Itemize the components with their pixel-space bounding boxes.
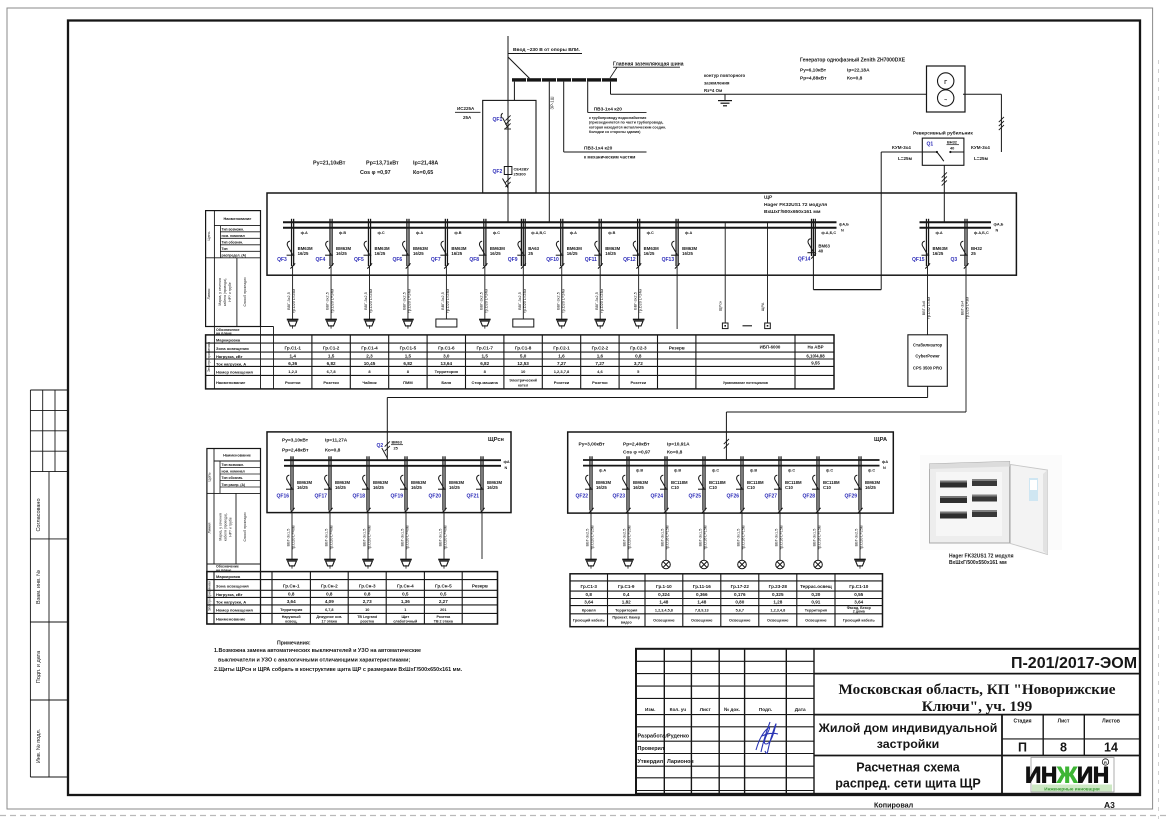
svg-text:Инв. № подл.: Инв. № подл.: [36, 728, 42, 763]
svg-text:ВВГ-3х1,5: ВВГ-3х1,5: [661, 529, 665, 547]
svg-text:R: R: [1104, 760, 1107, 765]
svg-text:Ключи", уч. 199: Ключи", уч. 199: [922, 698, 1033, 715]
svg-text:Ко=0,8: Ко=0,8: [325, 448, 341, 454]
svg-text:фА: фА: [882, 460, 888, 464]
svg-text:N: N: [841, 228, 844, 232]
svg-text:16/25: 16/25: [933, 251, 944, 256]
svg-text:Цепь: Цепь: [207, 473, 211, 482]
svg-text:Гр.17-22: Гр.17-22: [731, 584, 750, 589]
svg-text:QF10: QF10: [546, 257, 559, 263]
svg-text:Гр.С1-4: Гр.С1-4: [361, 346, 378, 351]
svg-text:16/25: 16/25: [605, 251, 616, 256]
svg-text:25: 25: [528, 251, 533, 256]
svg-text:тр.D32 L=3м: тр.D32 L=3м: [927, 297, 931, 319]
svg-text:фА: фА: [504, 460, 510, 464]
svg-text:Марка, у сечения: Марка, у сечения: [218, 278, 222, 305]
svg-text:кабеля (провода),: кабеля (провода),: [224, 513, 228, 541]
svg-text:1,4: 1,4: [290, 354, 297, 359]
svg-text:QF18: QF18: [353, 494, 366, 500]
svg-text:Наименование: Наименование: [223, 454, 251, 458]
svg-text:НР? и трубе: НР? и трубе: [228, 282, 232, 301]
svg-text:QF21: QF21: [467, 494, 480, 500]
svg-text:тр.D20 L=25м: тр.D20 L=25м: [860, 525, 864, 549]
svg-text:Электроприемники: Электроприемники: [207, 342, 211, 372]
svg-text:Способ прокладки: Способ прокладки: [243, 277, 247, 306]
svg-text:Зона освещения: Зона освещения: [216, 346, 249, 351]
svg-text:ВВГ-3х1,5: ВВГ-3х1,5: [287, 529, 291, 547]
svg-text:Взам. инв. №: Взам. инв. №: [36, 570, 42, 604]
svg-text:Розетки: Розетки: [554, 380, 570, 385]
svg-text:Территория: Территория: [805, 608, 827, 612]
svg-text:5,6,7: 5,6,7: [736, 608, 744, 612]
svg-text:ф.А: ф.А: [685, 231, 692, 235]
svg-text:тр.D16 L=15м: тр.D16 L=15м: [666, 525, 670, 549]
svg-text:Ру=21,10кВт: Ру=21,10кВт: [313, 161, 346, 167]
svg-text:ВхШхГ/500х650х161 мм: ВхШхГ/500х650х161 мм: [764, 209, 821, 215]
svg-text:16/25: 16/25: [644, 251, 655, 256]
svg-text:2,27: 2,27: [439, 599, 448, 604]
svg-text:ВВГ-3х2,5: ВВГ-3х2,5: [287, 292, 291, 310]
svg-text:ИНЖИН: ИНЖИН: [1025, 763, 1109, 788]
svg-text:ВВГ-3х2,5: ВВГ-3х2,5: [441, 292, 445, 310]
svg-text:тр.D20 L=24м: тр.D20 L=24м: [600, 289, 604, 313]
svg-text:Гр.11-16: Гр.11-16: [693, 584, 711, 589]
svg-text:25/300: 25/300: [514, 172, 527, 177]
svg-text:ЩР: ЩР: [764, 195, 773, 201]
svg-text:Зона освещения: Зона освещения: [216, 583, 249, 588]
svg-text:№ док.: № док.: [724, 707, 740, 712]
svg-text:1: 1: [404, 608, 406, 612]
svg-text:6,36: 6,36: [288, 361, 297, 366]
svg-text:0,176: 0,176: [734, 592, 746, 597]
svg-text:2 дома: 2 дома: [853, 610, 866, 614]
svg-text:16/25: 16/25: [411, 485, 422, 490]
svg-text:Тип: Тип: [222, 247, 228, 251]
svg-text:ф.А: ф.А: [301, 231, 308, 235]
svg-text:тр.D20 L=25м: тр.D20 L=25м: [591, 525, 595, 549]
svg-text:40: 40: [818, 248, 823, 253]
svg-text:Жилой дом индивидуальной: Жилой дом индивидуальной: [818, 721, 998, 735]
svg-text:Розетка: Розетка: [436, 615, 451, 619]
svg-text:к механическим частям: к механическим частям: [584, 154, 635, 159]
svg-text:16/25: 16/25: [413, 251, 424, 256]
svg-text:ф.С: ф.С: [712, 469, 719, 473]
svg-text:Ток нагрузки, А: Ток нагрузки, А: [216, 361, 246, 366]
svg-text:ВВГ-3х2,5: ВВГ-3х2,5: [623, 529, 627, 547]
svg-text:Гр.С1-8: Гр.С1-8: [515, 346, 532, 351]
svg-text:0,8: 0,8: [635, 354, 642, 359]
svg-text:1,2,3,4,8: 1,2,3,4,8: [770, 608, 785, 612]
svg-text:1.Возможна замена автоматическ: 1.Возможна замена автоматических выключа…: [214, 647, 421, 654]
svg-text:16/25: 16/25: [682, 251, 693, 256]
svg-text:ИБП-6000: ИБП-6000: [760, 345, 781, 350]
svg-text:ВВГ-3х2,5: ВВГ-3х2,5: [364, 292, 368, 310]
svg-text:Разработал: Разработал: [638, 733, 670, 740]
svg-text:Примечания:: Примечания:: [277, 641, 311, 647]
svg-text:QF1: QF1: [493, 117, 503, 123]
svg-text:тр.D20 L=40м: тр.D20 L=40м: [292, 525, 296, 549]
svg-text:Лист: Лист: [1058, 719, 1070, 725]
svg-text:0,366: 0,366: [696, 592, 708, 597]
svg-text:QF24: QF24: [651, 494, 664, 500]
svg-text:Инженерные инновации: Инженерные инновации: [1044, 787, 1100, 792]
svg-text:Колодки со стороны здания): Колодки со стороны здания): [589, 130, 641, 134]
svg-text:заземления: заземления: [704, 81, 730, 86]
svg-text:освещ.: освещ.: [285, 620, 297, 624]
svg-text:14: 14: [1104, 741, 1118, 755]
svg-text:9,55: 9,55: [811, 361, 820, 366]
svg-text:ВВГ-3х2,5: ВВГ-3х2,5: [326, 292, 330, 310]
svg-text:QF9: QF9: [508, 257, 518, 263]
svg-text:0,8: 0,8: [364, 592, 371, 597]
svg-text:ф.А: ф.А: [599, 469, 606, 473]
svg-text:Изм.: Изм.: [645, 707, 655, 712]
svg-text:16/25: 16/25: [490, 251, 501, 256]
svg-text:7,27: 7,27: [595, 361, 604, 366]
svg-text:Уравнивание потенциалов: Уравнивание потенциалов: [723, 381, 768, 385]
svg-text:16/25: 16/25: [633, 485, 644, 490]
svg-text:тр.D20 L=24м: тр.D20 L=24м: [523, 289, 527, 313]
svg-text:тр.D20 L=40м: тр.D20 L=40м: [368, 525, 372, 549]
svg-text:Проверил: Проверил: [638, 746, 665, 752]
svg-text:QF20: QF20: [429, 494, 442, 500]
svg-text:6,82: 6,82: [327, 361, 336, 366]
svg-text:Гр.С1-3: Гр.С1-3: [581, 584, 598, 589]
svg-text:16/25: 16/25: [336, 251, 347, 256]
svg-text:ф.В: ф.В: [636, 469, 643, 473]
svg-text:тр.D16 L=15м: тр.D16 L=15м: [742, 525, 746, 549]
svg-text:Тип обознач.: Тип обознач.: [222, 476, 244, 480]
svg-text:Греющий кабель: Греющий кабель: [843, 619, 875, 623]
svg-text:Расчетная схема: Расчетная схема: [856, 761, 960, 775]
svg-text:4,09: 4,09: [325, 599, 334, 604]
svg-text:Электроприемники: Электроприемники: [207, 581, 211, 611]
svg-text:N: N: [996, 228, 999, 232]
svg-text:Освещение: Освещение: [653, 619, 675, 623]
svg-text:16/25: 16/25: [567, 251, 578, 256]
svg-text:Электрический: Электрический: [509, 379, 537, 383]
svg-text:тр.D20 L=40м: тр.D20 L=40м: [444, 525, 448, 549]
svg-text:ф.А: ф.А: [416, 231, 423, 235]
svg-text:ф.В: ф.В: [674, 469, 681, 473]
svg-text:Марка, у сечения: Марка, у сечения: [219, 513, 223, 540]
svg-text:Ру=6,10кВт: Ру=6,10кВт: [800, 68, 827, 74]
svg-text:С10: С10: [671, 485, 679, 490]
svg-text:Резерв: Резерв: [669, 346, 685, 351]
svg-text:ВВГ-3х2,5: ВВГ-3х2,5: [403, 292, 407, 310]
svg-text:Гр.С1-7: Гр.С1-7: [476, 346, 493, 351]
svg-text:5,0: 5,0: [520, 354, 527, 359]
svg-text:3,72: 3,72: [634, 361, 643, 366]
svg-text:ЗР-1Ш: ЗР-1Ш: [550, 96, 555, 109]
svg-text:ф.С: ф.С: [826, 469, 833, 473]
svg-text:0,80: 0,80: [735, 599, 744, 604]
svg-text:25А: 25А: [463, 115, 472, 120]
svg-text:Чайник: Чайник: [362, 380, 376, 385]
svg-text:ВВГ-3х1,5: ВВГ-3х1,5: [401, 529, 405, 547]
svg-text:16/25: 16/25: [451, 251, 462, 256]
svg-text:QF2: QF2: [493, 169, 503, 175]
svg-text:Номер помещения: Номер помещения: [216, 370, 253, 375]
svg-text:видео: видео: [621, 620, 633, 624]
svg-text:201: 201: [440, 608, 446, 612]
svg-text:ном. номинал: ном. номинал: [222, 234, 245, 238]
svg-text:ЩРсн: ЩРсн: [488, 437, 504, 443]
svg-text:16/25: 16/25: [335, 485, 346, 490]
svg-text:QF8: QF8: [469, 257, 479, 263]
svg-text:1,6: 1,6: [558, 354, 565, 359]
svg-text:QF16: QF16: [277, 494, 290, 500]
svg-text:тр.D20 L=24м: тр.D20 L=24м: [561, 289, 565, 313]
svg-text:А3: А3: [1104, 800, 1115, 810]
svg-text:Террас.освещ: Террас.освещ: [800, 584, 832, 589]
svg-text:16/25: 16/25: [375, 251, 386, 256]
svg-text:13,64: 13,64: [441, 361, 453, 366]
svg-text:Cos φ =0,97: Cos φ =0,97: [360, 170, 391, 176]
svg-text:0,325: 0,325: [772, 592, 784, 597]
svg-text:QF25: QF25: [689, 494, 702, 500]
svg-text:тр.D20 L=24м: тр.D20 L=24м: [638, 289, 642, 313]
svg-text:0,324: 0,324: [658, 592, 670, 597]
svg-text:L=25м: L=25м: [898, 156, 913, 161]
svg-text:С10: С10: [709, 485, 717, 490]
svg-text:Территория: Территория: [280, 608, 302, 612]
svg-text:на плане: на плане: [216, 332, 232, 336]
svg-text:Баня: Баня: [441, 380, 452, 385]
svg-text:Гр.С1-5: Гр.С1-5: [400, 346, 417, 351]
svg-text:Iр=21,48А: Iр=21,48А: [413, 161, 438, 167]
svg-text:Ввод ~230 В от опоры ВЛИ.: Ввод ~230 В от опоры ВЛИ.: [513, 47, 581, 53]
svg-text:ф.А,Б,С: ф.А,Б,С: [974, 231, 989, 235]
svg-text:8: 8: [1060, 741, 1067, 755]
svg-text:ВВГ-3х4: ВВГ-3х4: [961, 301, 965, 316]
svg-text:тр.D20 L=24м: тр.D20 L=24м: [292, 289, 296, 313]
svg-text:6,7,8: 6,7,8: [325, 608, 333, 612]
svg-text:тр.D20 L=40м: тр.D20 L=40м: [406, 525, 410, 549]
svg-text:0,4: 0,4: [623, 592, 630, 597]
svg-text:П-201/2017-ЭОМ: П-201/2017-ЭОМ: [1011, 655, 1137, 672]
svg-text:ВВГ-3х2,5: ВВГ-3х2,5: [855, 529, 859, 547]
svg-text:Греющий кабель: Греющий кабель: [573, 619, 605, 623]
svg-text:Реверсивный рубильник: Реверсивный рубильник: [913, 130, 973, 137]
svg-text:ВхШхГ/500х550х161 мм: ВхШхГ/500х550х161 мм: [949, 560, 1007, 566]
svg-text:2,3: 2,3: [366, 354, 373, 359]
svg-text:Наружный: Наружный: [282, 615, 301, 619]
svg-text:16/25: 16/25: [297, 485, 308, 490]
svg-text:ф.А,Б,С: ф.А,Б,С: [821, 231, 836, 235]
svg-text:Гр.С2-3: Гр.С2-3: [630, 346, 647, 351]
svg-text:0,20: 0,20: [811, 592, 820, 597]
svg-text:Наименование: Наименование: [216, 380, 246, 385]
svg-text:6,7,8: 6,7,8: [327, 369, 337, 374]
svg-text:40: 40: [950, 145, 954, 150]
svg-text:Розетки: Розетки: [592, 380, 608, 385]
svg-text:Гр.Сн-5: Гр.Сн-5: [435, 583, 452, 588]
svg-text:Гр.С1-10: Гр.С1-10: [849, 584, 868, 589]
svg-text:Тип обознач.: Тип обознач.: [222, 241, 244, 245]
svg-text:6,10/4,88: 6,10/4,88: [806, 353, 825, 358]
svg-text:Маркировка: Маркировка: [216, 574, 241, 579]
svg-text:Cos φ =0,97: Cos φ =0,97: [623, 450, 651, 456]
svg-text:ТВ Legrand: ТВ Legrand: [357, 615, 377, 619]
svg-text:Номер помещения: Номер помещения: [216, 607, 253, 612]
svg-text:Гр.23-28: Гр.23-28: [769, 584, 788, 589]
svg-text:12,53: 12,53: [517, 361, 529, 366]
svg-text:фА,Б: фА,Б: [839, 222, 849, 226]
svg-text:Освещение: Освещение: [805, 619, 827, 623]
svg-text:Нагрузка, кВт: Нагрузка, кВт: [216, 354, 243, 359]
svg-text:Кровля: Кровля: [582, 608, 596, 612]
svg-text:0,8: 0,8: [586, 592, 593, 597]
svg-text:QF22: QF22: [576, 494, 589, 500]
svg-text:тр.D20 L=24м: тр.D20 L=24м: [331, 289, 335, 313]
svg-text:ЩРА: ЩРА: [874, 437, 887, 443]
svg-text:Линия: Линия: [207, 523, 211, 534]
svg-text:которая находится металлически: которая находится металлическим соедин.: [589, 125, 666, 129]
svg-text:10: 10: [521, 369, 526, 374]
svg-text:Розетки: Розетки: [323, 380, 339, 385]
svg-text:ВВГ-3х2,5: ВВГ-3х2,5: [586, 529, 590, 547]
svg-text:Освещение: Освещение: [767, 619, 789, 623]
svg-text:QF23: QF23: [613, 494, 626, 500]
svg-text:25: 25: [971, 251, 976, 256]
svg-text:ВВГ-3х2,5: ВВГ-3х2,5: [633, 292, 637, 310]
svg-text:КУМ-3х4: КУМ-3х4: [892, 145, 911, 150]
svg-text:КУМ-3х4: КУМ-3х4: [971, 145, 990, 150]
svg-text:Розетки: Розетки: [285, 380, 301, 385]
svg-text:0,5: 0,5: [440, 592, 447, 597]
svg-text:тр.D25 L=3м: тр.D25 L=3м: [966, 297, 970, 319]
svg-text:Нагрузка, кВт: Нагрузка, кВт: [216, 592, 243, 597]
svg-text:Hager FK32US1 72 модуля: Hager FK32US1 72 модуля: [764, 202, 827, 208]
svg-text:2,73: 2,73: [363, 599, 372, 604]
svg-text:тр.D20 L=24м: тр.D20 L=24м: [446, 289, 450, 313]
svg-text:Территория: Территория: [435, 369, 459, 374]
svg-text:QF6: QF6: [392, 257, 402, 263]
svg-text:QF4: QF4: [316, 257, 326, 263]
svg-text:Гр.С1-9: Гр.С1-9: [618, 584, 635, 589]
svg-text:1,82: 1,82: [622, 599, 631, 604]
svg-text:1,28: 1,28: [773, 599, 782, 604]
svg-text:ф.А: ф.А: [936, 231, 943, 235]
svg-text:застройки: застройки: [877, 737, 939, 751]
svg-text:1,2,3,4,5,8: 1,2,3,4,5,8: [655, 608, 673, 612]
svg-text:Рр=4,88кВт: Рр=4,88кВт: [800, 76, 827, 82]
svg-text:тр.D16 L=15м: тр.D16 L=15м: [704, 525, 708, 549]
svg-text:QF3: QF3: [277, 257, 287, 263]
svg-text:Гр.Сн-1: Гр.Сн-1: [283, 583, 300, 588]
svg-text:Тип возможн.: Тип возможн.: [222, 463, 245, 467]
svg-text:ВВГ-3х1,5: ВВГ-3х1,5: [813, 529, 817, 547]
svg-text:ВВГ-3х1,5: ВВГ-3х1,5: [737, 529, 741, 547]
svg-text:3,64: 3,64: [854, 599, 863, 604]
svg-text:ф.В: ф.В: [454, 231, 461, 235]
svg-text:16/25: 16/25: [865, 485, 876, 490]
svg-text:выключатели и УЗО с аналогичны: выключатели и УЗО с аналогичными отличаю…: [218, 658, 410, 664]
svg-text:ПВ3-1х4 к20: ПВ3-1х4 к20: [594, 107, 623, 113]
svg-text:Линия: Линия: [207, 289, 211, 300]
svg-text:(присоединяется по части трубо: (присоединяется по части трубопровода,: [589, 121, 663, 125]
svg-text:0,55: 0,55: [854, 592, 863, 597]
svg-text:ВВГ-3х1,5: ВВГ-3х1,5: [775, 529, 779, 547]
svg-text:QF28: QF28: [803, 494, 816, 500]
svg-text:Руденко: Руденко: [667, 734, 690, 740]
svg-text:4,6: 4,6: [597, 369, 603, 374]
svg-text:0,8: 0,8: [326, 592, 333, 597]
svg-text:Московская область, КП "Новори: Московская область, КП "Новорижские: [839, 681, 1116, 698]
svg-text:ф.В: ф.В: [608, 231, 615, 235]
svg-text:ВВГ-3х2,5: ВВГ-3х2,5: [556, 292, 560, 310]
svg-text:Стадия: Стадия: [1013, 719, 1031, 725]
svg-text:Прожект. Камер: Прожект. Камер: [612, 616, 641, 620]
svg-text:Щит: Щит: [401, 615, 409, 619]
svg-text:Рр=2,48кВт: Рр=2,48кВт: [282, 448, 309, 454]
svg-text:0,8: 0,8: [288, 592, 295, 597]
svg-text:тр.D20 L=24м: тр.D20 L=24м: [408, 289, 412, 313]
svg-text:Стир.машина: Стир.машина: [471, 380, 498, 385]
svg-text:ф.А: ф.А: [570, 231, 577, 235]
svg-text:ф.С: ф.С: [868, 469, 875, 473]
svg-text:ВМ63: ВМ63: [392, 440, 403, 445]
svg-text:П: П: [1018, 741, 1027, 755]
svg-text:QF5: QF5: [354, 257, 364, 263]
svg-text:Дата: Дата: [795, 707, 806, 712]
svg-text:0,91: 0,91: [811, 599, 820, 604]
svg-text:распред. сети щита ЩР: распред. сети щита ЩР: [835, 777, 980, 791]
svg-text:слаботочный: слаботочный: [393, 620, 417, 624]
svg-text:Рр=13,71кВт: Рр=13,71кВт: [366, 161, 399, 167]
svg-text:Подп. и дата: Подп. и дата: [36, 650, 42, 683]
svg-text:1,5: 1,5: [405, 354, 412, 359]
svg-text:Ток нагрузки, А: Ток нагрузки, А: [216, 599, 246, 604]
svg-text:Освещение: Освещение: [729, 619, 751, 623]
svg-text:Iр=22,18А: Iр=22,18А: [847, 68, 870, 74]
svg-text:~: ~: [944, 98, 947, 104]
svg-text:Гр.С1-2: Гр.С1-2: [323, 346, 340, 351]
svg-text:Стабилизатор: Стабилизатор: [913, 343, 943, 348]
svg-text:Гр.Сн-2: Гр.Сн-2: [321, 583, 338, 588]
svg-text:6,82: 6,82: [480, 361, 489, 366]
svg-text:Цепь: Цепь: [207, 232, 211, 241]
svg-text:1,5: 1,5: [482, 354, 489, 359]
svg-text:Подп.: Подп.: [759, 707, 772, 712]
svg-text:QF27: QF27: [765, 494, 778, 500]
svg-text:розетка: розетка: [360, 620, 375, 624]
svg-text:ВВГ-3х2,5: ВВГ-3х2,5: [479, 292, 483, 310]
svg-text:Генератор однофазный Zenith ZH: Генератор однофазный Zenith ZH7000DXE: [800, 57, 906, 64]
svg-text:QF19: QF19: [391, 494, 404, 500]
svg-text:Ко=0,65: Ко=0,65: [413, 170, 433, 176]
svg-text:N: N: [505, 466, 508, 470]
svg-text:С10: С10: [747, 485, 755, 490]
svg-text:1? этажа: 1? этажа: [322, 620, 338, 624]
svg-text:Гр.С1-6: Гр.С1-6: [438, 346, 455, 351]
svg-text:Ру=3,10кВт: Ру=3,10кВт: [282, 438, 309, 444]
svg-text:2.Щиты ЩРсн и ЩРА собрать в ко: 2.Щиты ЩРсн и ЩРА собрать в конструктиве…: [214, 666, 463, 673]
svg-text:1,2,3,7,8: 1,2,3,7,8: [554, 369, 570, 374]
svg-text:1,5: 1,5: [328, 354, 335, 359]
svg-text:Освещение: Освещение: [691, 619, 713, 623]
svg-text:1,36: 1,36: [401, 599, 410, 604]
svg-text:3,64: 3,64: [584, 599, 593, 604]
svg-text:Ко=0,8: Ко=0,8: [667, 450, 683, 456]
svg-text:тр.D16 L=15м: тр.D16 L=15м: [818, 525, 822, 549]
svg-text:тр.D20 L=24м: тр.D20 L=24м: [369, 289, 373, 313]
svg-text:На АВР: На АВР: [807, 345, 823, 350]
svg-text:Резерв: Резерв: [472, 583, 488, 588]
svg-text:С10: С10: [823, 485, 831, 490]
svg-text:7,27: 7,27: [557, 361, 566, 366]
